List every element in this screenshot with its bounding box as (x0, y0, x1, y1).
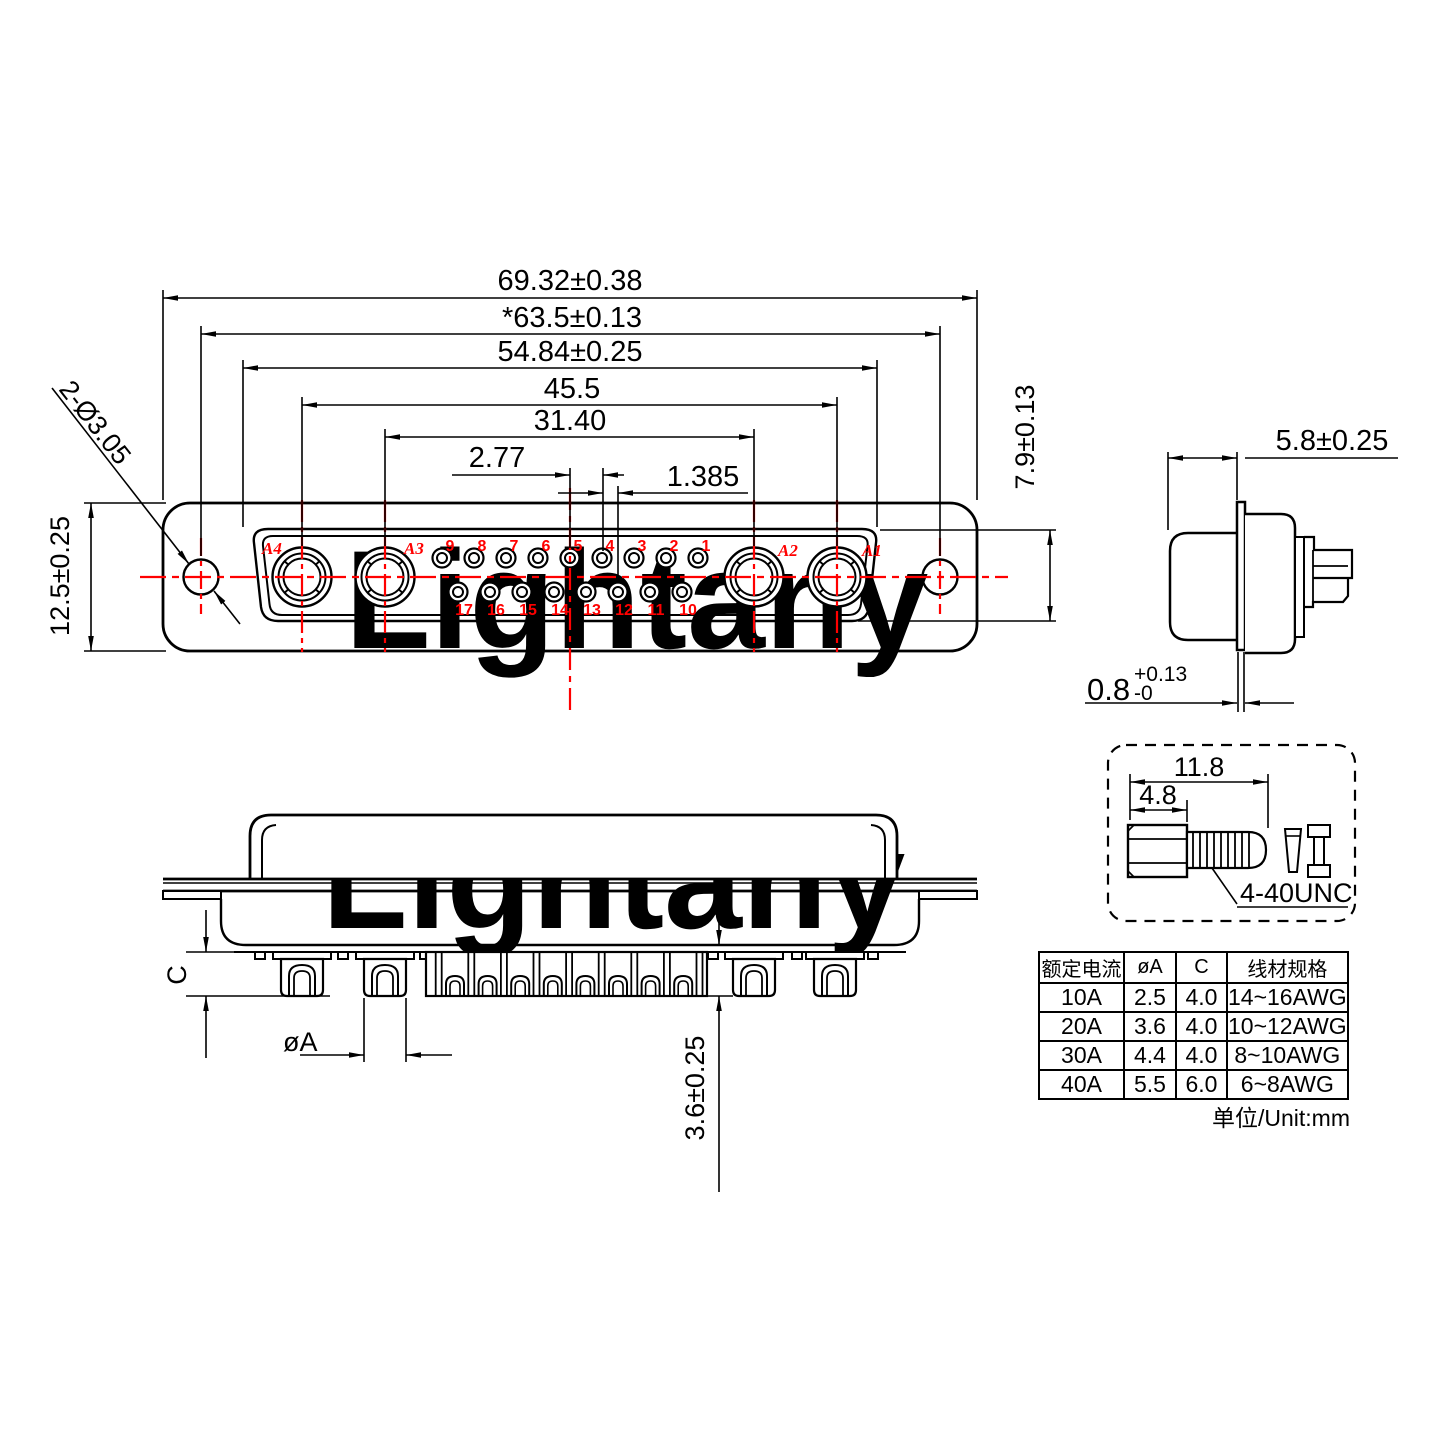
table-row: 30A 4.4 4.0 8~10AWG (1039, 1041, 1348, 1070)
body-rear (1245, 514, 1295, 653)
cell-current-30a: 30A (1039, 1041, 1124, 1070)
side-view-bottom: C øA 3.6±0.25 (162, 815, 977, 1192)
flange-tab-left (163, 891, 221, 899)
shell-front (1170, 533, 1237, 640)
side-view-right: 5.8±0.25 0.8 +0.13 -0 (1085, 425, 1398, 712)
col-phi-a: øA (1124, 952, 1176, 983)
dim-tail-length: 3.6±0.25 (680, 1036, 710, 1141)
col-c: C (1176, 952, 1227, 983)
pin-label-3: 3 (638, 538, 647, 555)
pin-label-16: 16 (487, 602, 505, 619)
pin-label-13: 13 (583, 602, 601, 619)
table-row: 20A 3.6 4.0 10~12AWG (1039, 1012, 1348, 1041)
hood-outline (250, 815, 897, 879)
contact-label-a2: A2 (777, 541, 798, 560)
screw-head (1128, 825, 1187, 877)
dim-screw-head-length: 4.8 (1139, 780, 1177, 810)
pin-label-14: 14 (551, 602, 569, 619)
pin-label-4: 4 (606, 538, 615, 555)
col-wire-gauge: 线材规格 (1227, 952, 1348, 983)
dim-flange-tol-minus: -0 (1134, 682, 1153, 705)
dim-insert-height: 7.9±0.13 (1010, 385, 1040, 490)
dim-flange-height: 12.5±0.25 (45, 516, 75, 636)
cell-current-10a: 10A (1039, 983, 1124, 1012)
pin-label-8: 8 (478, 538, 487, 555)
dim-flange-thickness: 0.8 (1087, 672, 1130, 707)
dim-mount-hole-callout: 2-Ø3.05 (53, 375, 137, 470)
technical-drawing: Lightany Lightany A4 A3 A2 A1 9 8 (0, 0, 1440, 1440)
pin-label-11: 11 (648, 602, 665, 619)
dim-insert-width: 54.84±0.25 (498, 336, 643, 368)
contact-label-a1: A1 (861, 541, 882, 560)
drawing-page: Lightany Lightany A4 A3 A2 A1 9 8 (0, 0, 1440, 1440)
pin-label-15: 15 (519, 602, 537, 619)
dim-front-depth: 5.8±0.25 (1276, 425, 1389, 457)
rear-insulator (1304, 537, 1352, 607)
pin-label-10: 10 (679, 602, 697, 619)
dim-overall-width: 69.32±0.38 (498, 265, 643, 297)
col-rated-current: 额定电流 (1039, 952, 1124, 983)
dim-row-offset: 1.385 (667, 461, 740, 493)
contact-label-a4: A4 (261, 539, 282, 558)
pin-label-7: 7 (510, 538, 519, 555)
accessory-spool (1308, 825, 1330, 877)
pin-label-2: 2 (670, 538, 679, 555)
flange-edge (1237, 502, 1245, 650)
dim-cup-diameter: øA (283, 1027, 318, 1057)
contact-label-a3: A3 (403, 539, 424, 558)
screw-shaft (1187, 832, 1266, 868)
pin-label-17: 17 (455, 602, 473, 619)
dim-mount-hole-spacing: *63.5±0.13 (502, 302, 642, 334)
dim-inner-contact-spacing: 31.40 (534, 405, 607, 437)
body-step (1295, 537, 1304, 637)
pin-label-1: 1 (702, 538, 711, 555)
pin-label-6: 6 (542, 538, 551, 555)
dim-cup-depth: C (162, 965, 192, 985)
unit-note: 单位/Unit:mm (1038, 1099, 1350, 1133)
table-row: 40A 5.5 6.0 6~8AWG (1039, 1070, 1348, 1099)
dim-pin-pitch: 2.77 (469, 442, 525, 474)
pin-label-12: 12 (615, 602, 633, 619)
pin-label-5: 5 (574, 538, 583, 555)
thread-spec-label: 4-40UNC (1240, 878, 1353, 908)
spec-table-header-row: 额定电流 øA C 线材规格 (1039, 952, 1348, 983)
dim-outer-contact-spacing: 45.5 (544, 373, 600, 405)
table-row: 10A 2.5 4.0 14~16AWG (1039, 983, 1348, 1012)
dim-screw-total-length: 11.8 (1174, 752, 1225, 782)
cell-current-20a: 20A (1039, 1012, 1124, 1041)
pin-label-9: 9 (446, 538, 455, 555)
screw-detail: 11.8 4.8 4-40UNC (1108, 745, 1355, 921)
flange-tab-right (919, 891, 977, 899)
spec-table: 额定电流 øA C 线材规格 10A 2.5 4.0 14~16AWG 20A … (1038, 951, 1349, 1100)
cell-current-40a: 40A (1039, 1070, 1124, 1099)
